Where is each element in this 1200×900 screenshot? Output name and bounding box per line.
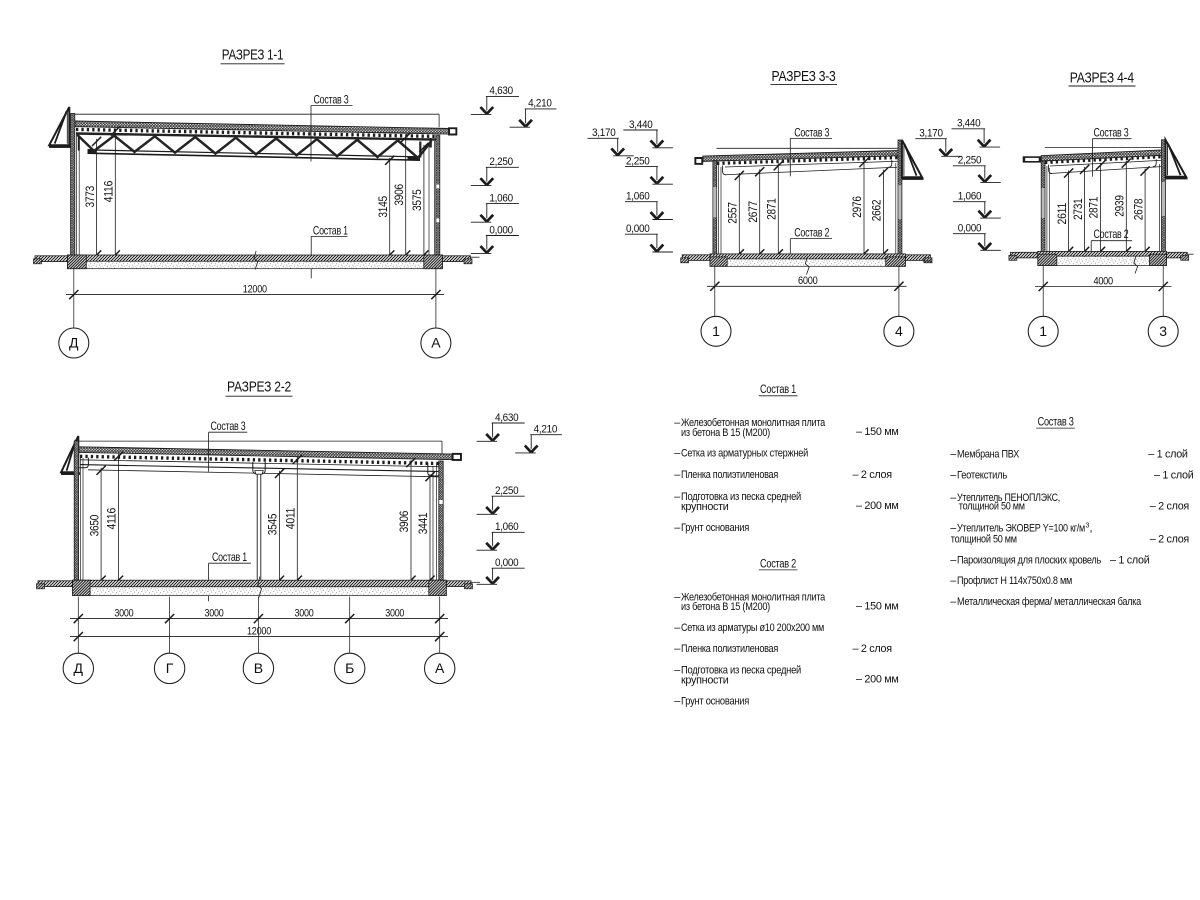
svg-text:2,250: 2,250 (489, 156, 513, 168)
svg-text:крупности: крупности (681, 674, 729, 686)
svg-text:Состав 2: Состав 2 (794, 225, 829, 239)
svg-text:3441: 3441 (416, 512, 430, 534)
svg-text:– 2 слоя: – 2 слоя (1150, 501, 1190, 513)
svg-text:Д: Д (69, 335, 79, 351)
svg-text:3: 3 (1159, 323, 1167, 339)
svg-text:Состав 3: Состав 3 (1094, 126, 1129, 140)
svg-text:2,250: 2,250 (495, 485, 519, 497)
svg-text:–: – (950, 449, 956, 461)
svg-text:–: – (674, 591, 680, 603)
svg-text:3773: 3773 (83, 186, 97, 208)
svg-text:2871: 2871 (1087, 196, 1101, 218)
svg-text:12000: 12000 (247, 625, 271, 637)
svg-text:толщиной 50 мм: толщиной 50 мм (959, 501, 1025, 513)
svg-text:4000: 4000 (1093, 275, 1113, 287)
svg-text:–: – (674, 643, 680, 655)
svg-text:В: В (254, 660, 263, 676)
svg-text:3,170: 3,170 (919, 128, 943, 140)
svg-text:– 200 мм: – 200 мм (856, 674, 898, 686)
svg-text:РАЗРЕЗ 1-1: РАЗРЕЗ 1-1 (222, 47, 284, 64)
svg-text:–: – (674, 469, 680, 481)
svg-text:Состав 2: Состав 2 (760, 558, 796, 570)
svg-text:3,440: 3,440 (629, 119, 653, 131)
svg-text:2557: 2557 (726, 202, 740, 224)
svg-text:2678: 2678 (1131, 198, 1145, 220)
svg-text:1: 1 (1039, 323, 1047, 339)
svg-text:3575: 3575 (410, 189, 424, 211)
svg-text:Грунт основания: Грунт основания (681, 696, 749, 708)
svg-text:Состав 1: Состав 1 (760, 384, 796, 396)
svg-text:–: – (674, 448, 680, 460)
svg-text:2,250: 2,250 (958, 155, 982, 167)
svg-text:–: – (674, 491, 680, 503)
svg-text:–: – (950, 470, 956, 482)
svg-text:3,440: 3,440 (957, 118, 981, 130)
svg-text:Состав 2: Состав 2 (1094, 227, 1129, 241)
svg-text:– 1 слой: – 1 слой (1110, 555, 1150, 567)
svg-text:– 150 мм: – 150 мм (856, 600, 898, 612)
svg-text:3000: 3000 (295, 607, 314, 619)
svg-text:– 2 слоя: – 2 слоя (1150, 533, 1190, 545)
svg-text:3000: 3000 (114, 607, 133, 619)
svg-text:4: 4 (895, 323, 903, 339)
svg-text:Пленка полиэтиленовая: Пленка полиэтиленовая (681, 469, 778, 481)
svg-text:1,060: 1,060 (495, 521, 519, 533)
svg-text:4011: 4011 (284, 507, 298, 529)
svg-text:2871: 2871 (765, 198, 779, 220)
svg-text:толщиной 50 мм: толщиной 50 мм (951, 533, 1017, 545)
svg-text:3000: 3000 (205, 607, 224, 619)
svg-text:–: – (674, 622, 680, 634)
svg-text:3145: 3145 (376, 196, 390, 218)
svg-text:12000: 12000 (243, 284, 267, 296)
svg-text:3545: 3545 (266, 513, 280, 535)
svg-text:2677: 2677 (746, 201, 760, 223)
svg-text:Пароизоляция для плоских крове: Пароизоляция для плоских кровель (957, 555, 1102, 567)
svg-text:6000: 6000 (798, 275, 818, 287)
svg-text:Мембрана ПВХ: Мембрана ПВХ (957, 449, 1019, 461)
svg-text:крупности: крупности (681, 501, 729, 513)
svg-text:– 150 мм: – 150 мм (856, 426, 898, 438)
svg-text:–: – (674, 417, 680, 429)
svg-text:4116: 4116 (105, 508, 119, 530)
svg-text:2611: 2611 (1055, 203, 1069, 225)
svg-text:–: – (674, 696, 680, 708)
svg-text:Состав 3: Состав 3 (1038, 417, 1074, 429)
svg-text:Сетка из арматуры ø10 200x200: Сетка из арматуры ø10 200x200 мм (681, 622, 824, 634)
svg-text:А: А (435, 660, 445, 676)
svg-text:1,060: 1,060 (626, 191, 650, 203)
svg-text:Металлическая ферма/ металличе: Металлическая ферма/ металлическая балка (957, 596, 1141, 608)
svg-text:3000: 3000 (385, 607, 404, 619)
svg-text:Профлист Н 114x750x0.8 мм: Профлист Н 114x750x0.8 мм (957, 575, 1072, 587)
svg-text:А: А (431, 335, 441, 351)
svg-text:Сетка из арматурных стержней: Сетка из арматурных стержней (681, 448, 808, 460)
svg-text:– 1 слой: – 1 слой (1154, 470, 1194, 482)
svg-text:– 1 слой: – 1 слой (1148, 449, 1188, 461)
svg-text:3,170: 3,170 (592, 127, 616, 139)
svg-text:1: 1 (712, 323, 720, 339)
svg-text:из бетона В 15 (М200): из бетона В 15 (М200) (681, 427, 770, 439)
svg-text:0,000: 0,000 (958, 223, 982, 235)
svg-text:2939: 2939 (1113, 195, 1127, 217)
svg-text:3906: 3906 (397, 510, 411, 532)
svg-text:Геотекстиль: Геотекстиль (957, 470, 1008, 482)
svg-text:2,250: 2,250 (626, 156, 650, 168)
svg-text:1,060: 1,060 (489, 193, 513, 205)
svg-text:РАЗРЕЗ 4-4: РАЗРЕЗ 4-4 (1070, 70, 1134, 87)
svg-text:2662: 2662 (870, 199, 884, 221)
svg-text:РАЗРЕЗ 2-2: РАЗРЕЗ 2-2 (227, 379, 291, 396)
svg-text:4,630: 4,630 (495, 412, 519, 424)
svg-text:2731: 2731 (1071, 198, 1085, 220)
svg-text:–: – (674, 522, 680, 534)
svg-text:4116: 4116 (102, 180, 116, 202)
svg-text:4,630: 4,630 (489, 85, 513, 97)
svg-text:из бетона В 15 (М200): из бетона В 15 (М200) (681, 601, 770, 613)
svg-text:0,000: 0,000 (626, 223, 650, 235)
svg-text:–: – (950, 596, 956, 608)
svg-text:Состав 3: Состав 3 (794, 125, 829, 139)
svg-text:Грунт основания: Грунт основания (681, 522, 749, 534)
svg-text:3906: 3906 (392, 184, 406, 206)
svg-text:Состав 1: Состав 1 (212, 550, 247, 564)
svg-text:РАЗРЕЗ 3-3: РАЗРЕЗ 3-3 (772, 68, 836, 85)
svg-text:Г: Г (166, 660, 174, 676)
svg-text:Состав 3: Состав 3 (314, 92, 349, 106)
svg-text:Состав 1: Состав 1 (313, 224, 348, 238)
svg-text:–: – (950, 555, 956, 567)
svg-text:– 200 мм: – 200 мм (856, 500, 898, 512)
svg-text:–: – (950, 575, 956, 587)
svg-text:– 2 слоя: – 2 слоя (853, 643, 893, 655)
svg-text:3650: 3650 (87, 514, 101, 536)
svg-text:– 2 слоя: – 2 слоя (853, 469, 893, 481)
svg-text:0,000: 0,000 (489, 224, 513, 236)
svg-text:–: – (950, 492, 956, 504)
svg-text:–: – (674, 665, 680, 677)
svg-text:Д: Д (74, 660, 84, 676)
svg-text:4,210: 4,210 (534, 423, 558, 435)
svg-text:2976: 2976 (850, 196, 864, 218)
svg-text:Состав 3: Состав 3 (211, 419, 246, 433)
svg-text:0,000: 0,000 (495, 557, 519, 569)
svg-text:Пленка полиэтиленовая: Пленка полиэтиленовая (681, 643, 778, 655)
svg-text:Б: Б (345, 660, 354, 676)
svg-text:1,060: 1,060 (958, 191, 982, 203)
svg-text:4,210: 4,210 (528, 98, 552, 110)
svg-text:,: , (1090, 522, 1093, 534)
